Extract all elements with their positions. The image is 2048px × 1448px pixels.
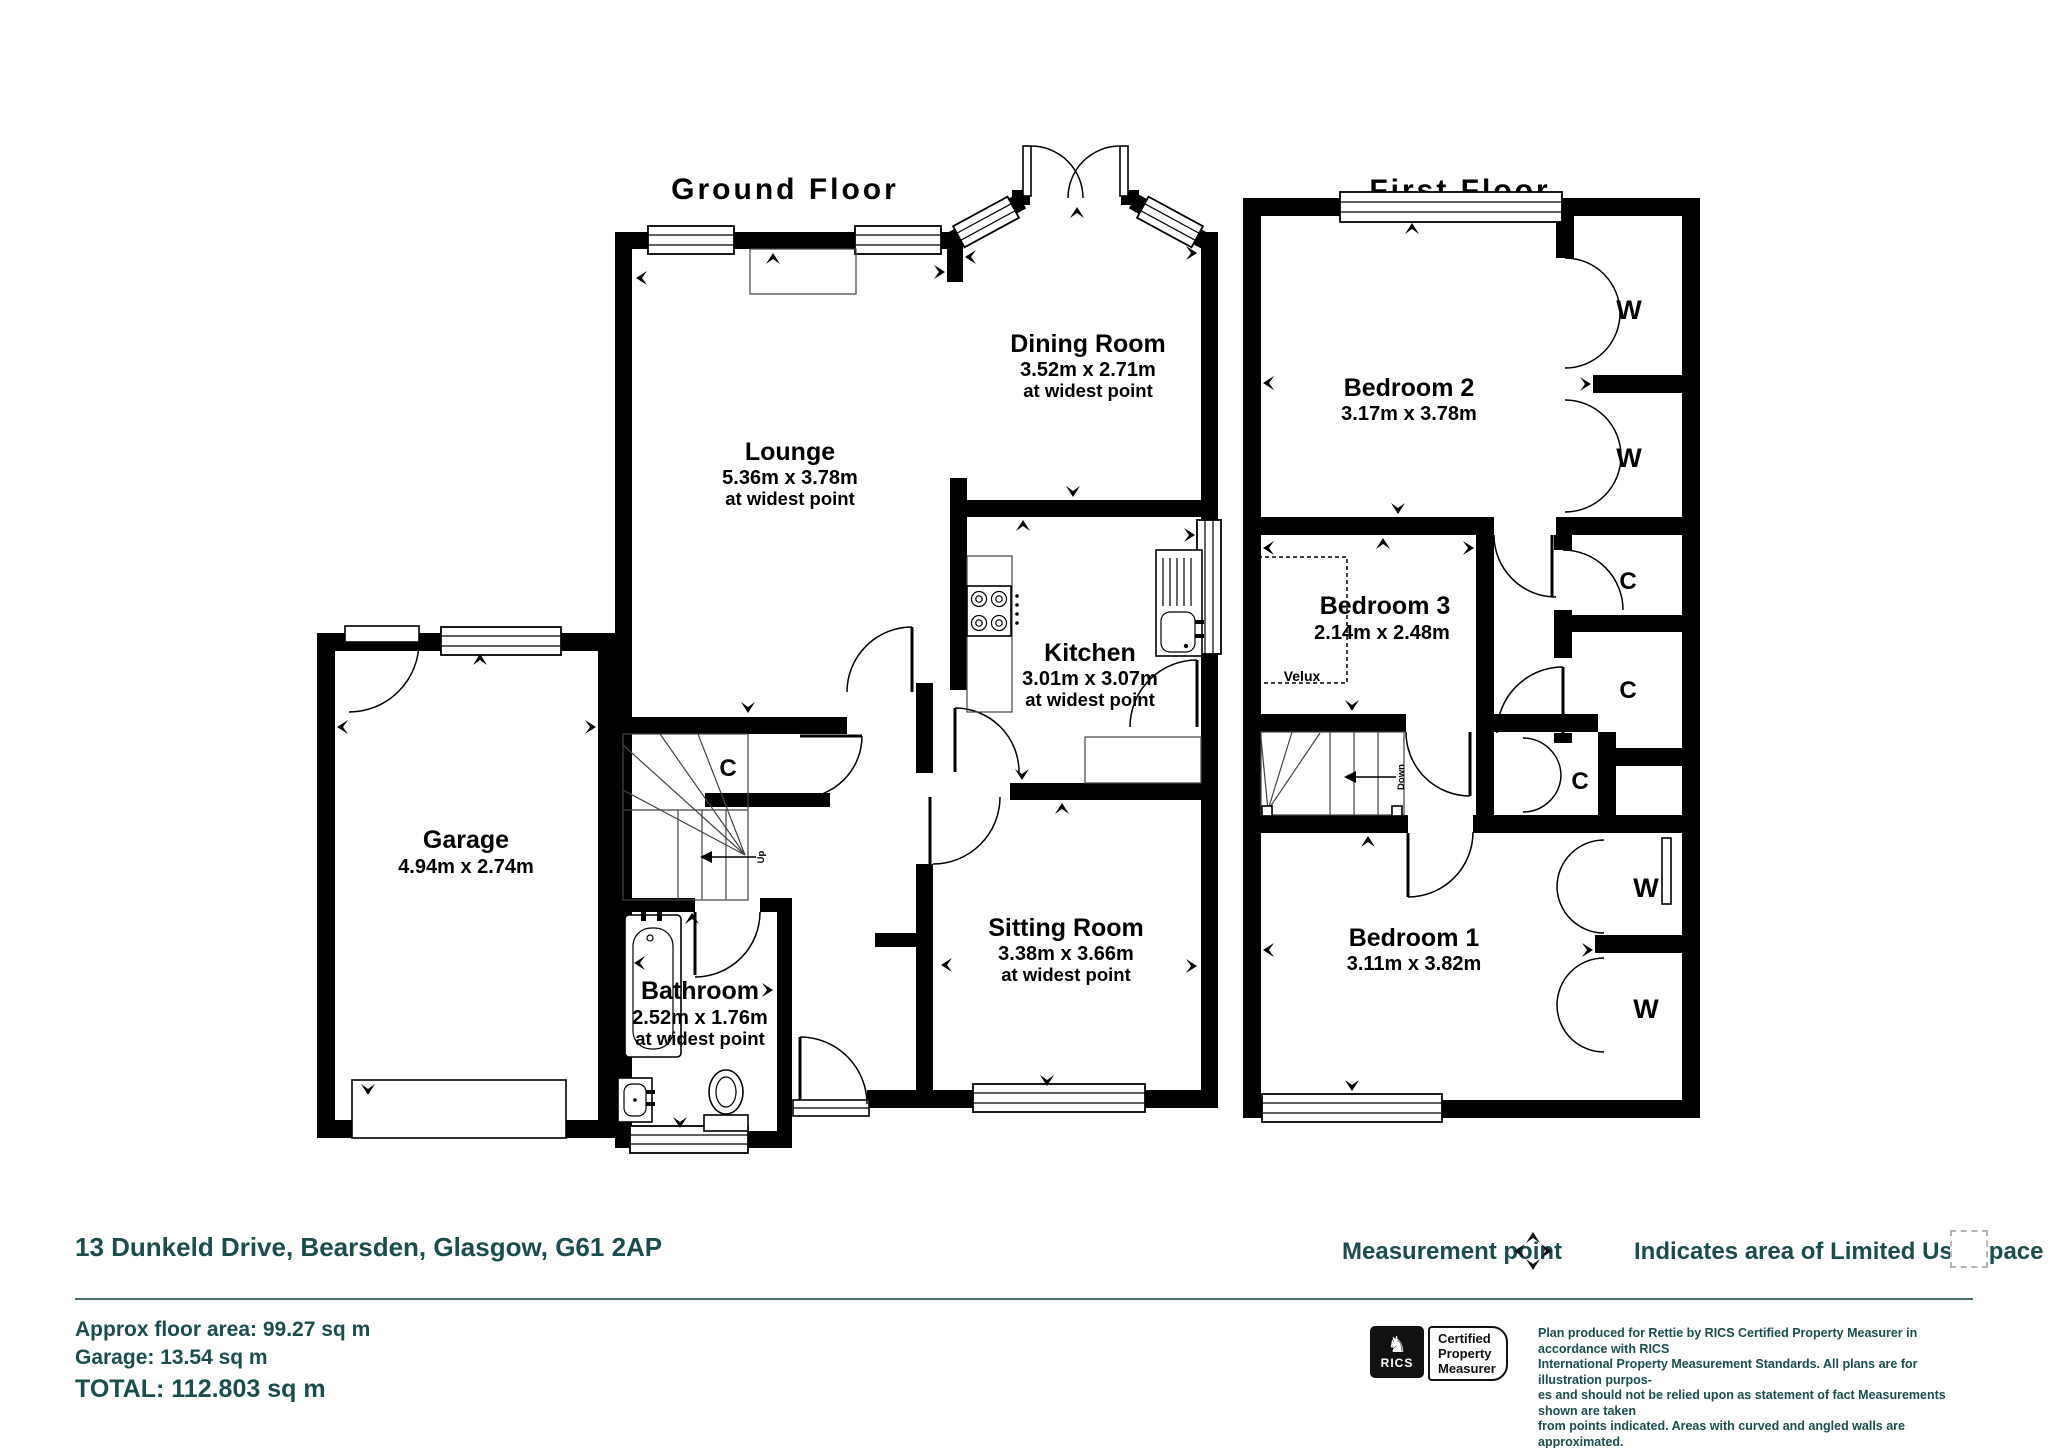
wardrobe-label-3: W	[1633, 873, 1659, 903]
lounge-name: Lounge	[745, 438, 835, 466]
limited-use-swatch	[1950, 1230, 1988, 1268]
bay-window-right	[1137, 197, 1203, 248]
rics-brand: RICS	[1381, 1356, 1414, 1370]
lounge-window-right	[855, 226, 941, 254]
disclaimer-text: Plan produced for Rettie by RICS Certifi…	[1538, 1326, 1978, 1448]
garage-window	[441, 627, 561, 655]
stairs-down-label: Down	[1396, 764, 1407, 790]
cert-line-2: Property	[1438, 1346, 1496, 1361]
wardrobe-label-2: W	[1616, 443, 1642, 473]
disclaimer-line-1: Plan produced for Rettie by RICS Certifi…	[1538, 1326, 1978, 1357]
bathroom-note: at widest point	[635, 1028, 765, 1049]
bedroom2-door	[1494, 535, 1556, 597]
bedroom1-dims: 3.11m x 3.82m	[1347, 953, 1482, 975]
bedroom2-label: Bedroom 2 3.17m x 3.78m	[1341, 374, 1477, 425]
basin-icon	[618, 1078, 655, 1122]
kitchen-note: at widest point	[1025, 689, 1155, 710]
hob-icon	[967, 586, 1019, 636]
disclaimer-line-3: es and should not be relied upon as stat…	[1538, 1388, 1978, 1419]
sitting-dims: 3.38m x 3.66m	[998, 943, 1134, 965]
lounge-dims: 5.36m x 3.78m	[722, 467, 858, 489]
ground-floor-title: Ground Floor	[671, 173, 899, 206]
kitchen-label: Kitchen 3.01m x 3.07m at widest point	[1022, 639, 1158, 710]
bathroom-door	[695, 912, 760, 977]
rics-cert-box: Certified Property Measurer	[1428, 1326, 1508, 1381]
bedroom3-label: Bedroom 3 2.14m x 2.48m	[1314, 592, 1450, 644]
garage-door-personnel	[345, 626, 419, 712]
bedroom2-dims: 3.17m x 3.78m	[1341, 403, 1477, 425]
bay-window-left	[953, 197, 1019, 248]
first-floor-walls	[1243, 198, 1700, 1118]
closet-label-2: C	[1619, 677, 1636, 704]
sink-icon	[1156, 550, 1204, 656]
stairs-up-label: Up	[756, 850, 767, 863]
ff-side-vent	[1662, 838, 1671, 904]
velux-label: Velux	[1284, 668, 1321, 684]
bedroom3-name: Bedroom 3	[1320, 592, 1451, 620]
wardrobe1-doors	[1565, 258, 1620, 368]
stairs-down: Down	[1261, 732, 1407, 816]
lounge-window-left	[648, 226, 734, 254]
landing-closet-doors	[1523, 738, 1561, 812]
sitting-room-label: Sitting Room 3.38m x 3.66m at widest poi…	[988, 914, 1144, 985]
bathroom-name: Bathroom	[641, 977, 759, 1005]
garage-label: Garage 4.94m x 2.74m	[398, 826, 534, 878]
velux-area: Velux	[1258, 557, 1347, 684]
kitchen-name: Kitchen	[1044, 639, 1136, 667]
bathroom-label: Bathroom 2.52m x 1.76m at widest point	[632, 977, 768, 1049]
property-address: 13 Dunkeld Drive, Bearsden, Glasgow, G61…	[75, 1232, 662, 1263]
sitting-room-window	[973, 1084, 1145, 1112]
lounge-door	[847, 627, 912, 692]
wardrobe-label-1: W	[1616, 295, 1642, 325]
bedroom3-door	[1406, 732, 1470, 796]
bathroom-dims: 2.52m x 1.76m	[632, 1007, 768, 1029]
bedroom2-name: Bedroom 2	[1344, 374, 1475, 402]
b1-wardrobe-upper-doors	[1557, 840, 1604, 933]
sitting-room-door	[930, 797, 1000, 864]
rics-logo: ♞ RICS	[1370, 1326, 1424, 1378]
closet-label-1: C	[1619, 568, 1636, 595]
closet1-door	[1563, 550, 1623, 610]
bedroom1-label: Bedroom 1 3.11m x 3.82m	[1347, 924, 1482, 975]
wardrobe2-doors	[1565, 400, 1621, 512]
garage-area: Garage: 13.54 sq m	[75, 1344, 370, 1372]
rics-lion-icon: ♞	[1387, 1334, 1407, 1356]
dining-note: at widest point	[1023, 380, 1153, 401]
lounge-label: Lounge 5.36m x 3.78m at widest point	[722, 438, 858, 509]
measurement-point-icon	[1514, 1232, 1552, 1275]
front-door	[793, 1037, 869, 1116]
total-area: TOTAL: 112.803 sq m	[75, 1372, 370, 1406]
wardrobe-label-4: W	[1633, 994, 1659, 1024]
ff-bottom-window	[1262, 1094, 1442, 1122]
dining-room-label: Dining Room 3.52m x 2.71m at widest poin…	[1010, 330, 1166, 401]
cert-line-1: Certified	[1438, 1331, 1496, 1346]
b1-wardrobe-lower-doors	[1557, 958, 1604, 1052]
ground-floor-plan: Ground Floor	[317, 146, 1221, 1153]
approx-floor-area: Approx floor area: 99.27 sq m	[75, 1316, 370, 1344]
garage-dims: 4.94m x 2.74m	[398, 856, 534, 878]
stairs-up: Up	[623, 734, 767, 900]
ff-top-window	[1340, 192, 1562, 222]
first-floor-plan: First Floor	[1243, 174, 1700, 1122]
floor-areas: Approx floor area: 99.27 sq m Garage: 13…	[75, 1316, 370, 1406]
bedroom1-door	[1408, 832, 1473, 897]
cert-line-3: Measurer	[1438, 1361, 1496, 1376]
dining-dims: 3.52m x 2.71m	[1020, 359, 1156, 381]
french-doors	[1023, 146, 1128, 198]
gf-closet-label: C	[719, 755, 736, 782]
closet-label-3: C	[1571, 768, 1588, 795]
floorplan-page: Ground Floor	[0, 0, 2048, 1448]
dining-name: Dining Room	[1010, 330, 1166, 358]
sitting-note: at widest point	[1001, 964, 1131, 985]
floor-plan-svg: Ground Floor	[0, 0, 2048, 1230]
disclaimer-line-2: International Property Measurement Stand…	[1538, 1357, 1978, 1388]
garage-door-main	[352, 1080, 566, 1138]
bedroom1-name: Bedroom 1	[1349, 924, 1480, 952]
closet-door	[800, 736, 862, 798]
divider-rule	[75, 1298, 1973, 1300]
lounge-note: at widest point	[725, 488, 855, 509]
bedroom3-dims: 2.14m x 2.48m	[1314, 622, 1450, 644]
toilet-icon	[704, 1070, 748, 1131]
sitting-name: Sitting Room	[988, 914, 1144, 942]
rics-certification: ♞ RICS Certified Property Measurer	[1370, 1326, 1508, 1381]
disclaimer-line-4: from points indicated. Areas with curved…	[1538, 1419, 1978, 1448]
kitchen-hall-door	[955, 708, 1019, 772]
garage-name: Garage	[423, 826, 509, 854]
kitchen-dims: 3.01m x 3.07m	[1022, 668, 1158, 690]
chimney-breast	[750, 249, 856, 294]
